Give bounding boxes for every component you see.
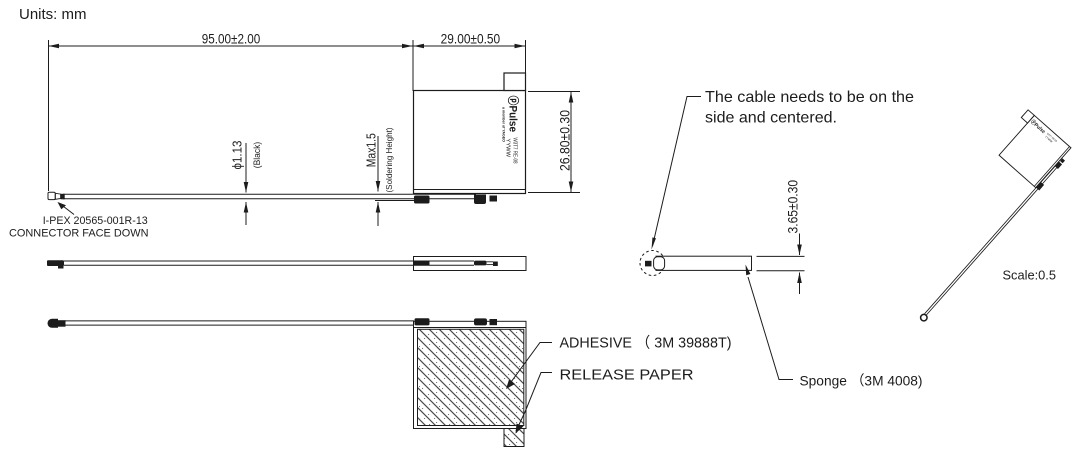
svg-text:Units: mm: Units: mm <box>19 6 87 23</box>
svg-text:Max1.5: Max1.5 <box>364 133 379 167</box>
svg-text:26.80±0.30: 26.80±0.30 <box>557 110 573 171</box>
svg-text:RELEASE PAPER: RELEASE PAPER <box>560 367 694 384</box>
svg-text:(Soldering Height): (Soldering Height) <box>384 127 394 192</box>
svg-text:ⓟPulse: ⓟPulse <box>507 96 521 133</box>
svg-text:95.00±2.00: 95.00±2.00 <box>202 31 261 47</box>
svg-text:Sponge （3M 4008): Sponge （3M 4008) <box>800 373 923 389</box>
svg-text:The cable needs to be on the: The cable needs to be on the <box>705 89 914 106</box>
svg-text:29.00±0.50: 29.00±0.50 <box>441 31 501 47</box>
svg-text:W3T7 RE-08: W3T7 RE-08 <box>512 138 518 164</box>
svg-text:I-PEX 20565-001R-13: I-PEX 20565-001R-13 <box>43 215 148 227</box>
svg-text:3.65±0.30: 3.65±0.30 <box>785 180 801 234</box>
svg-text:side and centered.: side and centered. <box>705 110 837 127</box>
svg-text:(Black): (Black) <box>252 142 262 169</box>
svg-text:CONNECTOR FACE DOWN: CONNECTOR FACE DOWN <box>9 228 149 240</box>
svg-text:YYWW: YYWW <box>505 139 511 158</box>
svg-text:ADHESIVE （ 3M 39888T): ADHESIVE （ 3M 39888T) <box>560 335 732 352</box>
svg-text:Scale:0.5: Scale:0.5 <box>1003 269 1057 283</box>
svg-text:a member of YAGEO: a member of YAGEO <box>502 107 506 142</box>
svg-text:ϕ1.13: ϕ1.13 <box>229 141 244 170</box>
